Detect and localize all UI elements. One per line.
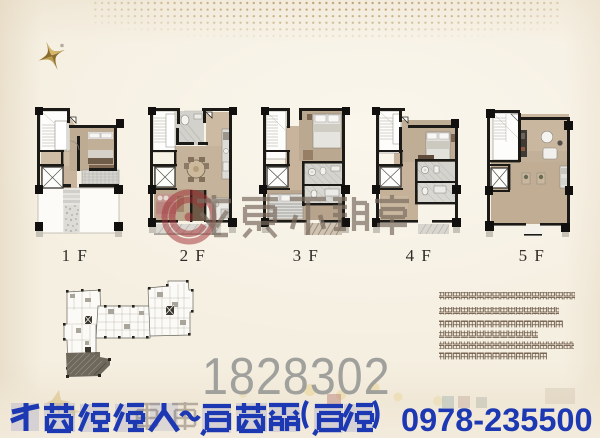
svg-text:0978-235500: 0978-235500: [401, 402, 593, 437]
